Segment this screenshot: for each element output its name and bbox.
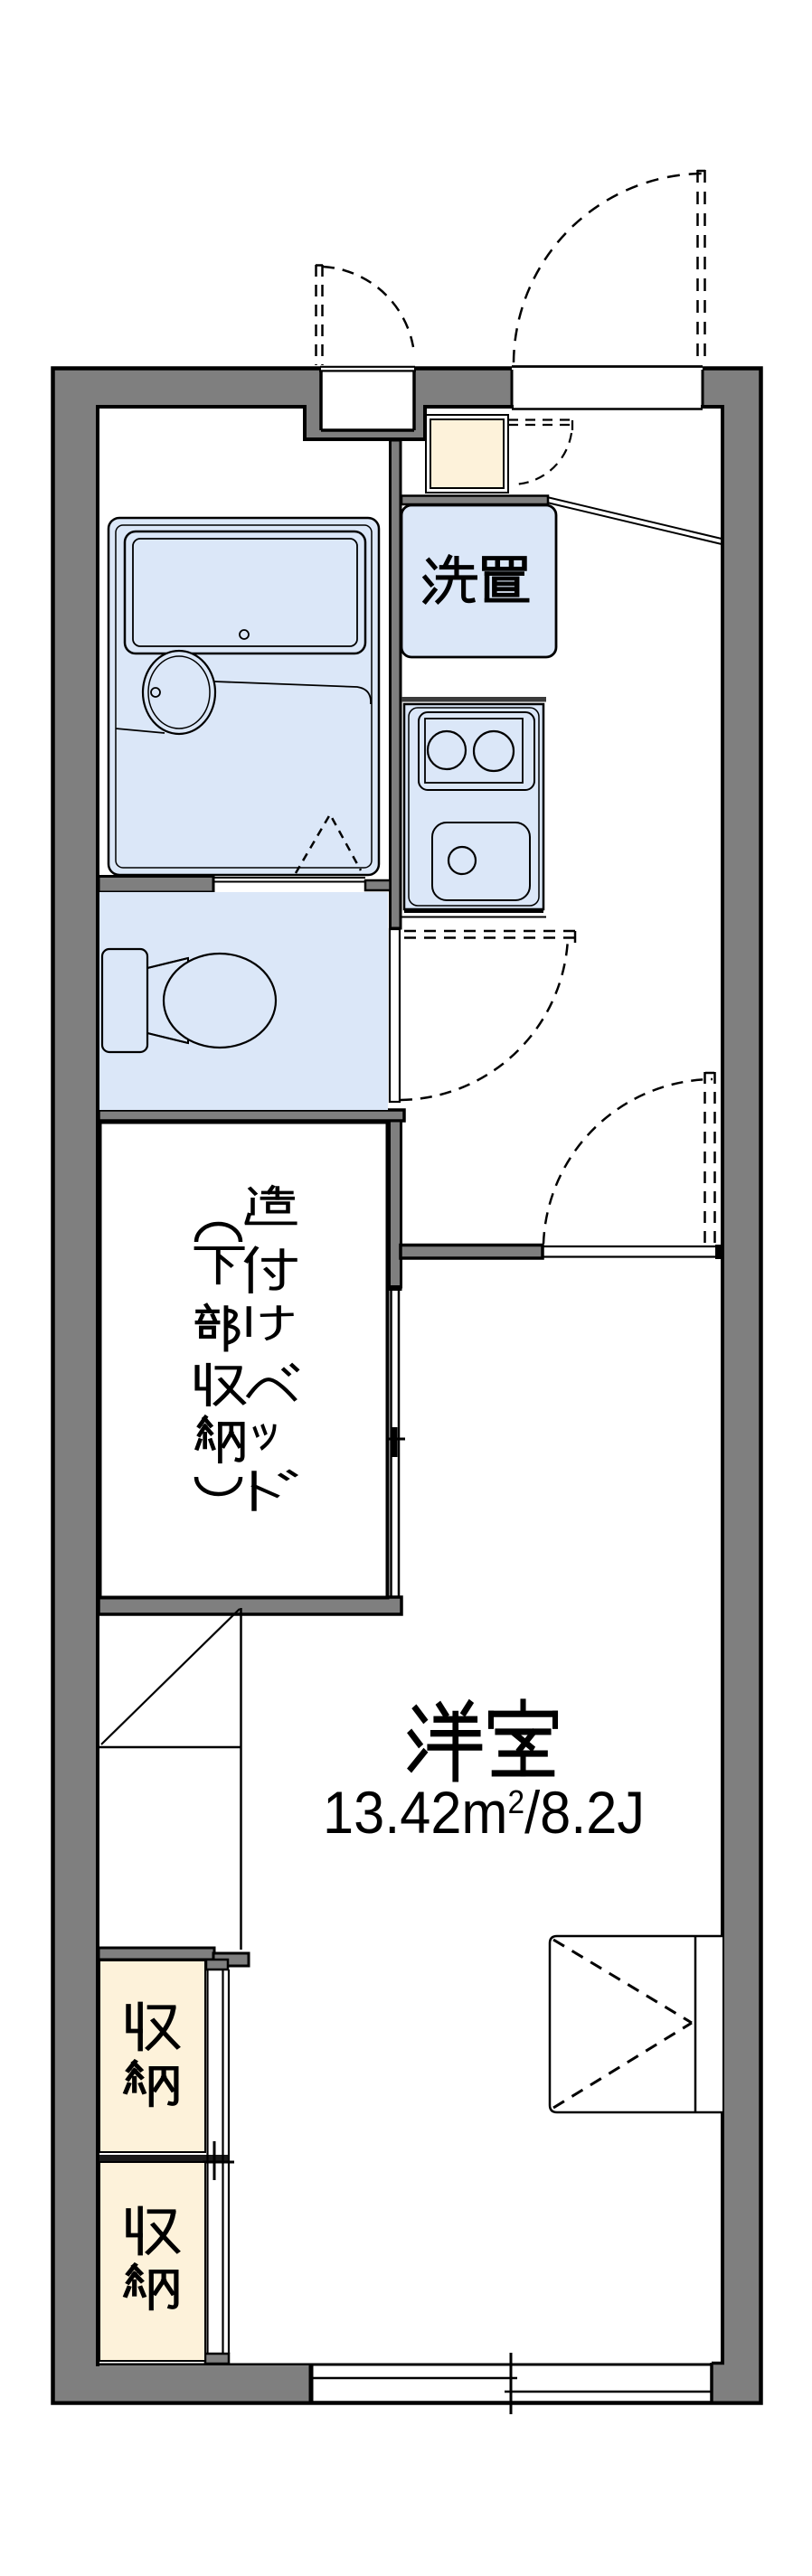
svg-text:13.42m2/8.2J: 13.42m2/8.2J <box>323 1779 645 1846</box>
